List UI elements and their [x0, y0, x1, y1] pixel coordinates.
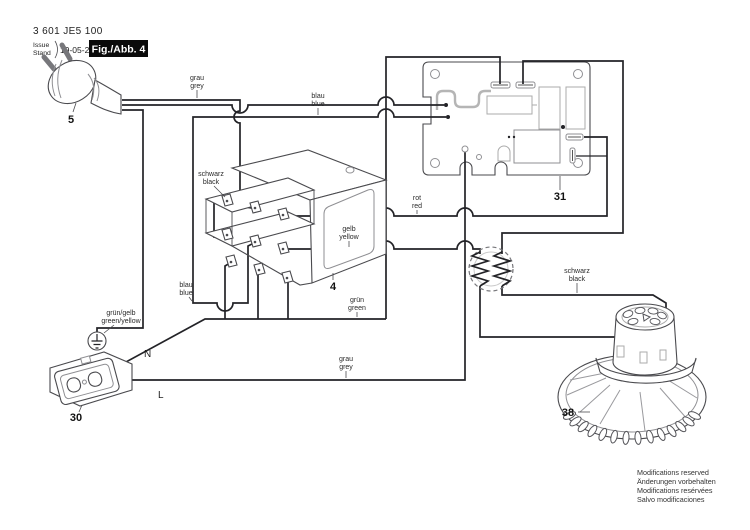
- blade-hole: [282, 214, 285, 217]
- motor-brush: [660, 350, 666, 360]
- motor-brush: [617, 346, 624, 357]
- plug-pin: [44, 57, 54, 69]
- pcb-pad-ring: [477, 155, 482, 160]
- leader-line: [189, 297, 192, 301]
- svg-text:4: 4: [330, 281, 337, 293]
- svg-text:grün: grün: [350, 297, 364, 304]
- svg-text:yellow: yellow: [339, 234, 359, 241]
- pcb-component: [487, 96, 532, 114]
- pcb-mount-hole: [431, 70, 440, 79]
- wire-pad: [446, 115, 450, 119]
- wire-label-rot: rot red: [412, 195, 422, 214]
- svg-text:green: green: [348, 305, 366, 312]
- wire-pad: [444, 103, 448, 107]
- socket-center-hole: [82, 380, 87, 385]
- blade-hole: [254, 241, 257, 244]
- svg-text:black: black: [203, 179, 220, 186]
- svg-text:blau: blau: [179, 282, 192, 289]
- footer-line: Änderungen vorbehalten: [637, 477, 716, 486]
- svg-text:rot: rot: [413, 195, 421, 202]
- earth-symbol: [88, 332, 106, 350]
- wire-label-schwarz-switch: schwarz black: [198, 171, 225, 197]
- pcb-mount-hole: [431, 159, 440, 168]
- wire-label-schwarz-motor: schwarz black: [564, 268, 590, 293]
- svg-text:schwarz: schwarz: [564, 268, 590, 275]
- svg-text:30: 30: [70, 412, 82, 424]
- pcb-solder-dot: [513, 136, 515, 138]
- diagram-canvas: 3 601 JE5 100 Issue Stand 19-05-29 Fig./…: [0, 0, 750, 530]
- pcb-pad-ring-l: [462, 146, 468, 152]
- pcb-component-d: [498, 146, 510, 161]
- svg-text:blue: blue: [179, 290, 192, 297]
- blade-hole: [282, 248, 285, 251]
- svg-text:blue: blue: [311, 101, 324, 108]
- leader-line: [73, 103, 76, 112]
- motor-brush: [640, 352, 647, 363]
- blade-hole: [286, 277, 289, 280]
- blade-hole: [230, 261, 233, 264]
- pcb-component: [539, 87, 560, 129]
- blade-hole: [226, 200, 229, 203]
- svg-text:red: red: [412, 203, 422, 210]
- pcb-component: [566, 87, 585, 129]
- footer-notice: Modifications reserved Änderungen vorbeh…: [637, 468, 716, 504]
- wire-label-grau-bottom: grau grey: [339, 356, 353, 378]
- wire-motor-left: [480, 286, 616, 337]
- footer-line: Modifications reserved: [637, 468, 709, 477]
- pcb-relay: [514, 130, 560, 163]
- svg-text:grey: grey: [190, 83, 204, 90]
- pcb-solder-dot: [508, 136, 510, 138]
- suppressor: [469, 247, 513, 291]
- pcb-mount-hole: [574, 70, 583, 79]
- label-neutral: N: [144, 349, 151, 360]
- figure-label: Fig./Abb. 4: [92, 44, 146, 56]
- vacuum-motor: [558, 304, 706, 445]
- leader-line: [104, 325, 114, 333]
- svg-text:blau: blau: [311, 93, 324, 100]
- switch-bottom-edge: [232, 246, 312, 285]
- wire-label-blau-lower: blau blue: [179, 282, 192, 301]
- footer-line: Modifications resérvées: [637, 486, 713, 495]
- wiring-diagram-page: 3 601 JE5 100 Issue Stand 19-05-29 Fig./…: [0, 0, 750, 530]
- label-live: L: [158, 390, 164, 401]
- callout-pcb: 31: [554, 176, 566, 203]
- plug-cable: [91, 80, 121, 114]
- svg-text:38: 38: [562, 407, 574, 419]
- svg-text:gelb: gelb: [342, 226, 355, 233]
- wire-gruen-gelb: [97, 110, 143, 332]
- wire-label-gruen: grün green: [348, 297, 366, 317]
- appliance-socket: [50, 350, 132, 406]
- blade-hole: [254, 207, 257, 210]
- svg-text:grau: grau: [190, 75, 204, 82]
- blade-hole: [226, 234, 229, 237]
- svg-text:5: 5: [68, 114, 74, 126]
- issue-bracket: [55, 41, 58, 58]
- header: 3 601 JE5 100 Issue Stand 19-05-29 Fig./…: [33, 26, 148, 58]
- svg-text:grey: grey: [339, 364, 353, 371]
- pcb-solder-pad: [561, 125, 565, 129]
- svg-text:31: 31: [554, 191, 566, 203]
- part-number: 3 601 JE5 100: [33, 26, 103, 37]
- svg-text:green/yellow: green/yellow: [101, 318, 141, 325]
- wire-label-gruen-gelb: grün/gelb green/yellow: [101, 310, 141, 333]
- callout-socket: 30: [70, 405, 82, 424]
- svg-text:grün/gelb: grün/gelb: [106, 310, 135, 317]
- issue-label: Issue: [33, 42, 49, 49]
- switch-hole: [346, 167, 354, 173]
- svg-text:black: black: [569, 276, 586, 283]
- wire-label-blau-top: blau blue: [311, 93, 324, 115]
- wire-label-grau-top: grau grey: [190, 75, 204, 98]
- svg-text:grau: grau: [339, 356, 353, 363]
- callout-plug: 5: [68, 103, 76, 126]
- footer-line: Salvo modificaciones: [637, 495, 705, 504]
- blade-hole: [258, 269, 261, 272]
- rocker-switch: [206, 150, 386, 285]
- svg-text:schwarz: schwarz: [198, 171, 224, 178]
